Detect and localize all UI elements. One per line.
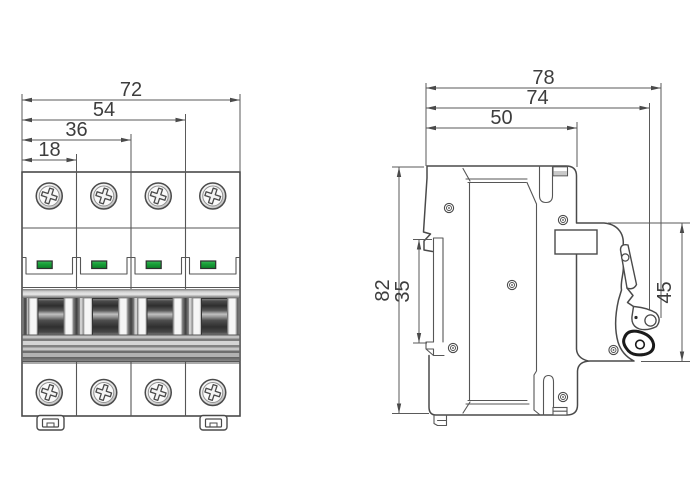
- din-clip-bottom-tab: [434, 415, 447, 426]
- terminal-screw: [145, 183, 171, 209]
- inner-face-lines: [463, 169, 540, 415]
- din-clip: [200, 416, 227, 431]
- side-dimensions-top: 78 74 50: [426, 67, 661, 167]
- status-window-green: [92, 261, 107, 269]
- pivot-dot: [634, 316, 637, 319]
- toggle-side-strip: [83, 298, 93, 335]
- side-view: 78 74 50 82 35 45: [372, 67, 690, 426]
- toggle-handle-front: [38, 299, 64, 336]
- dim-label-18: 18: [38, 139, 60, 161]
- front-view: 72 54 36 18: [22, 79, 240, 430]
- top-terminal-slot: [540, 166, 553, 203]
- lever-arm-hole: [622, 254, 629, 261]
- dim-label-54: 54: [93, 99, 115, 121]
- lever-arm: [621, 245, 637, 289]
- dim-label-36: 36: [65, 119, 87, 141]
- rivet: [558, 392, 567, 401]
- terminal-screw: [145, 380, 171, 406]
- top-clamp-window: [553, 167, 568, 176]
- dim-label-78: 78: [532, 67, 554, 89]
- toggle-side-strip: [173, 298, 183, 335]
- band-separator: [128, 298, 135, 335]
- toggle-side-strip: [138, 298, 148, 335]
- status-window-green: [201, 261, 216, 269]
- rivet: [448, 343, 457, 352]
- din-clip-hook: [426, 342, 444, 356]
- din-clip: [37, 416, 64, 431]
- toggle-handle-front: [93, 299, 119, 336]
- terminal-screw: [91, 380, 117, 406]
- rivet: [444, 203, 453, 212]
- terminal-screw: [91, 183, 117, 209]
- toggle-side-strip: [228, 298, 238, 335]
- toggle-handle-front: [147, 299, 173, 336]
- band-separator: [182, 298, 189, 335]
- side-view-outline: [424, 166, 635, 415]
- toggle-side-strip: [64, 298, 74, 335]
- dim-label-45: 45: [654, 281, 676, 303]
- status-window-green: [146, 261, 161, 269]
- dim-label-74: 74: [526, 87, 548, 109]
- rivet: [507, 280, 516, 289]
- terminal-screw: [200, 183, 226, 209]
- terminal-screw: [36, 183, 62, 209]
- toggle-side-strip: [192, 298, 202, 335]
- band-separator: [73, 298, 80, 335]
- bottom-clamp-window: [553, 408, 567, 416]
- band-edge: [23, 298, 28, 335]
- toggle-side-strip: [119, 298, 129, 335]
- toggle-handle-front: [202, 299, 228, 336]
- lever-kink: [627, 288, 634, 307]
- toggle-side-strip: [29, 298, 39, 335]
- handle-grip-hole: [636, 340, 645, 349]
- terminal-block: [555, 230, 597, 254]
- status-window-green: [37, 261, 52, 269]
- dim-label-72: 72: [120, 79, 142, 101]
- ridge-stripes: [23, 335, 239, 361]
- terminal-screw: [36, 380, 62, 406]
- band-top-ridge: [23, 289, 239, 298]
- toggle-band: [22, 289, 240, 362]
- side-dimensions-vertical: 82 35 45: [372, 167, 690, 414]
- breaker-dimension-drawing: 72 54 36 18: [0, 0, 700, 500]
- dim-label-50: 50: [490, 107, 512, 129]
- dim-label-35: 35: [392, 280, 414, 302]
- dim-label-82: 82: [372, 279, 394, 301]
- rivet: [609, 345, 618, 354]
- technical-drawing-page: 72 54 36 18: [0, 0, 700, 500]
- front-dimensions: 72 54 36 18: [22, 79, 240, 172]
- terminal-screw: [200, 380, 226, 406]
- pivot-hole: [645, 315, 656, 326]
- rivet: [558, 215, 567, 224]
- bottom-terminal-slot: [544, 376, 554, 416]
